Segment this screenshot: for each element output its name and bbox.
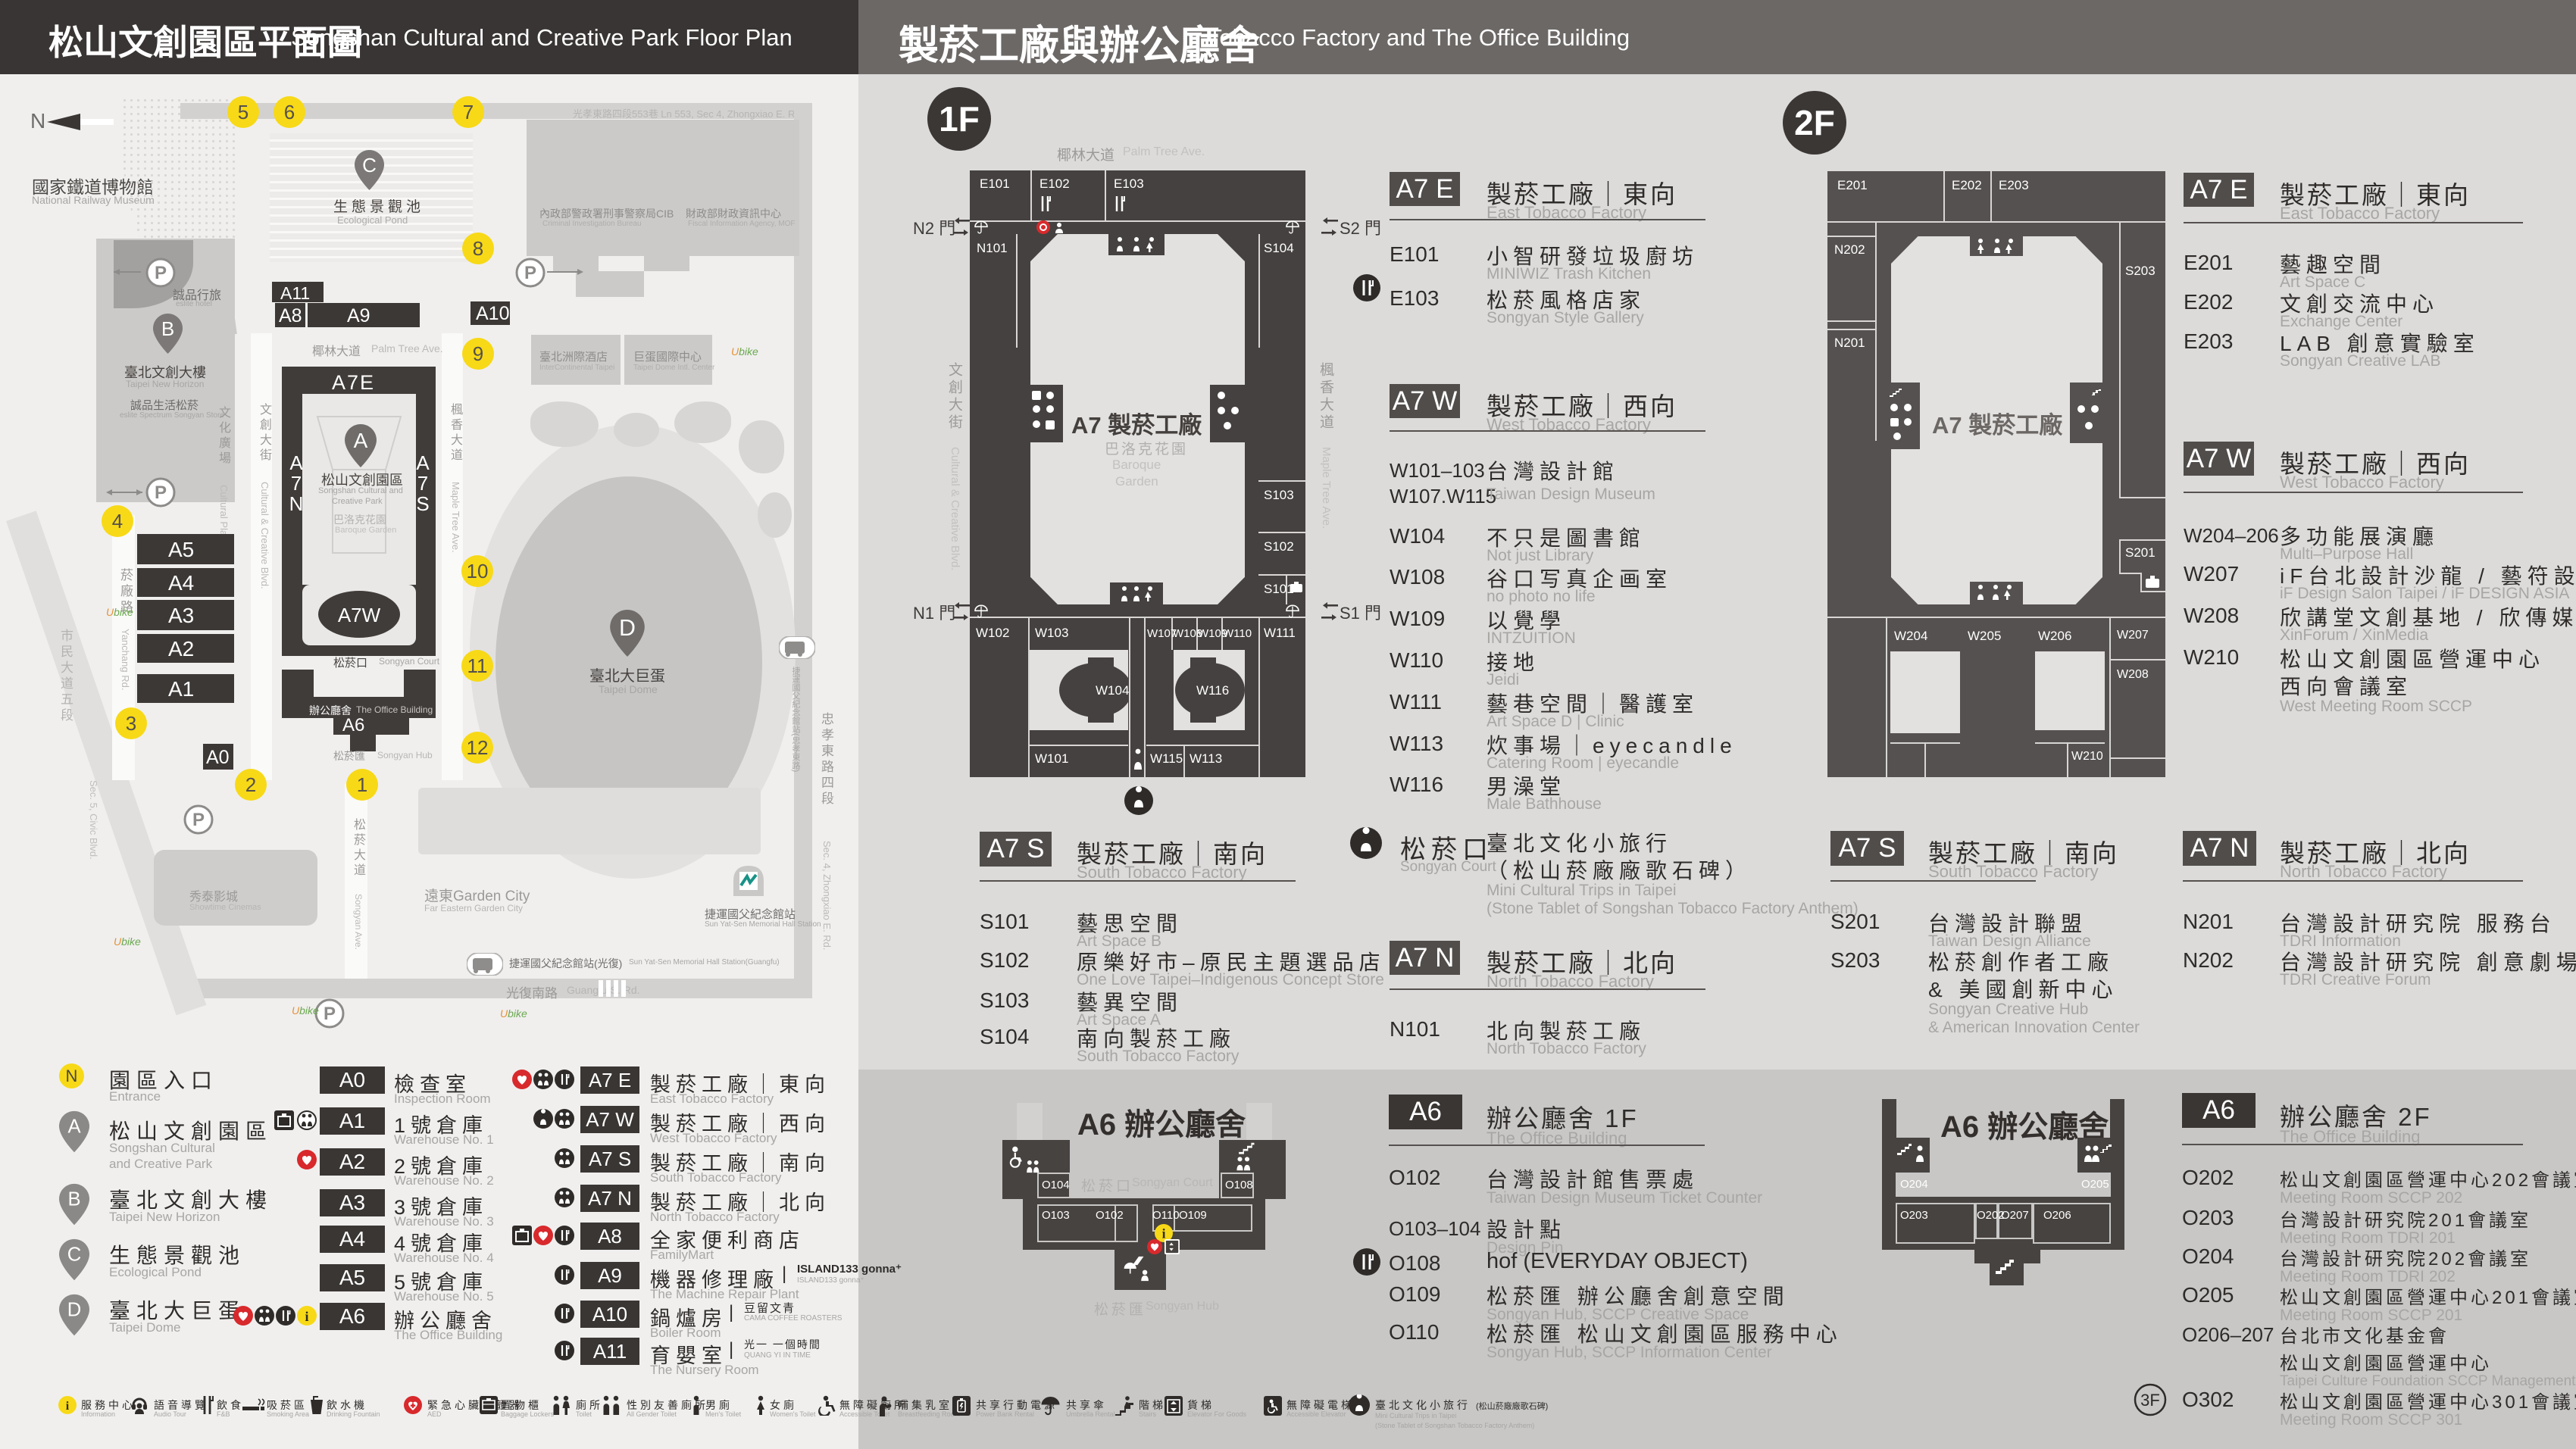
svg-text:C: C <box>67 1244 82 1266</box>
svg-text:W116: W116 <box>1196 683 1229 698</box>
svg-text:A7W: A7W <box>338 604 381 626</box>
svg-text:P: P <box>155 482 167 503</box>
svg-text:C: C <box>362 154 377 176</box>
svg-text:P: P <box>324 1004 336 1024</box>
svg-text:W104: W104 <box>1096 683 1129 698</box>
svg-text:D: D <box>67 1300 82 1321</box>
svg-text:A: A <box>354 429 368 452</box>
svg-text:P: P <box>155 263 167 283</box>
svg-text:i: i <box>66 1400 70 1413</box>
svg-text:B: B <box>67 1189 80 1210</box>
svg-text:i: i <box>305 1309 308 1324</box>
svg-text:A: A <box>67 1116 81 1138</box>
svg-text:D: D <box>619 615 636 641</box>
svg-text:B: B <box>161 317 174 340</box>
svg-text:P: P <box>192 810 205 830</box>
svg-text:3F: 3F <box>2140 1391 2160 1410</box>
svg-text:P: P <box>524 263 536 283</box>
